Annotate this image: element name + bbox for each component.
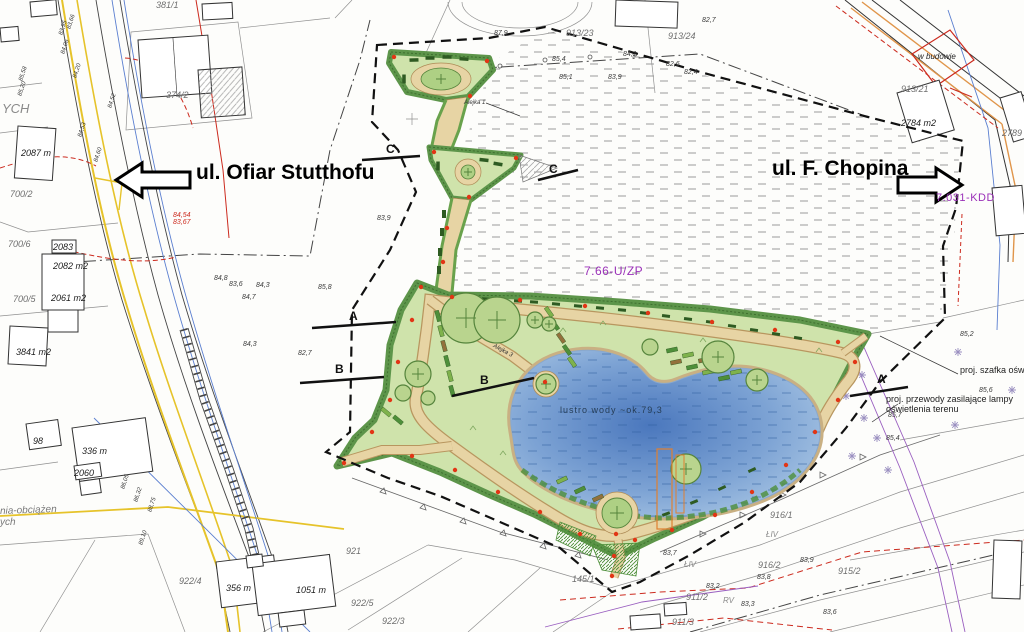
parcel-label: 913/23 bbox=[566, 29, 594, 38]
land-class-label: ŁIV bbox=[684, 561, 696, 569]
elevation-label: 83,6 bbox=[229, 281, 243, 288]
elevation-label: 83,9 bbox=[800, 557, 814, 564]
elevation-label: 82,6 bbox=[666, 61, 680, 68]
elevation-label: 85,7 bbox=[888, 412, 902, 419]
parcel-label: 911/2 bbox=[686, 593, 708, 602]
building-label: 2061 m2 bbox=[51, 294, 86, 303]
building-label: 1051 m bbox=[296, 586, 326, 595]
elevation-label: 82,4 bbox=[684, 69, 698, 76]
elevation-label: 83,9 bbox=[377, 215, 391, 222]
section-marker-a2: A bbox=[877, 373, 886, 385]
annotation-cables-1: proj. przewody zasilające lampy bbox=[886, 395, 1013, 404]
elevation-label: 85,1 bbox=[559, 74, 573, 81]
elevation-label: 82,7 bbox=[702, 17, 716, 24]
elevation-label: 83,9 bbox=[608, 74, 622, 81]
building-label: 356 m bbox=[226, 584, 251, 593]
elevation-label: 83,2 bbox=[706, 583, 720, 590]
parcel-label: 921 bbox=[346, 547, 361, 556]
elevation-label: 83,8 bbox=[757, 574, 771, 581]
elevation-label: 84,7 bbox=[242, 294, 256, 301]
parcel-label: 381/1 bbox=[156, 1, 179, 10]
section-marker-b: B bbox=[335, 363, 344, 375]
elevation-label: 84,3 bbox=[256, 282, 270, 289]
parcel-label: 915/2 bbox=[838, 567, 861, 576]
section-marker-b2: B bbox=[480, 374, 489, 386]
elevation-label: 84,1 bbox=[623, 51, 637, 58]
building-label: 2082 m2 bbox=[53, 262, 88, 271]
arrow-left-icon bbox=[116, 163, 190, 197]
parcel-label: 700/5 bbox=[13, 295, 36, 304]
parcel-label: 922/4 bbox=[179, 577, 202, 586]
building-label: 2060 bbox=[74, 469, 94, 478]
elevation-label: 85,2 bbox=[960, 331, 974, 338]
red-benchmark-label: 84,54 bbox=[173, 212, 191, 219]
building-label: 98 bbox=[33, 437, 43, 446]
land-class-label: RV bbox=[723, 597, 734, 605]
section-marker-c2: C bbox=[549, 163, 558, 175]
street-label-right: ul. F. Chopina bbox=[772, 158, 909, 179]
building-label: 2083 bbox=[53, 243, 73, 252]
parcel-label: 916/1 bbox=[770, 511, 793, 520]
parcel-label: 911/3 bbox=[672, 618, 694, 627]
elevation-label: 84,3 bbox=[243, 341, 257, 348]
parcel-label: 913/21 bbox=[901, 85, 929, 94]
edge-street-name-fragment: YCH bbox=[2, 102, 29, 115]
edge-note-fragment-1: nia-obciążen bbox=[0, 505, 57, 517]
edge-note-fragment-2: ych bbox=[0, 518, 16, 528]
site-plan-drawing bbox=[0, 0, 1024, 632]
land-class-label: ŁIV bbox=[766, 531, 778, 539]
red-benchmark-label: 83,67 bbox=[173, 219, 191, 226]
parcel-label: 700/2 bbox=[10, 190, 33, 199]
parcel-label: 700/6 bbox=[8, 240, 31, 249]
annotation-cabinet: proj. szafka oświetl bbox=[960, 366, 1024, 375]
elevation-label: 87,9 bbox=[494, 30, 508, 37]
pond-label: lustro wody ~ok.79,3 bbox=[560, 406, 663, 415]
elevation-label: 82,7 bbox=[298, 350, 312, 357]
parcel-label: 374/2 bbox=[166, 91, 189, 100]
elevation-label: 85,4 bbox=[552, 56, 566, 63]
site-plan-page: ul. Ofiar Stutthofu ul. F. Chopina 7.66-… bbox=[0, 0, 1024, 632]
elevation-label: 84,8 bbox=[214, 275, 228, 282]
path-label-alejka-1: Alejka 1 bbox=[464, 100, 485, 106]
parcel-label: 2789 bbox=[1002, 129, 1022, 138]
building-label: 2087 m bbox=[21, 149, 51, 158]
parcel-label: 922/5 bbox=[351, 599, 374, 608]
parcel-label: 145/1 bbox=[572, 575, 595, 584]
zone-label-park: 7.66-U/ZP bbox=[584, 265, 643, 277]
section-marker-c: C bbox=[386, 143, 395, 155]
building-label: 3841 m2 bbox=[16, 348, 51, 357]
street-label-left: ul. Ofiar Stutthofu bbox=[196, 162, 374, 183]
elevation-label: 83,6 bbox=[823, 609, 837, 616]
elevation-label: 85,6 bbox=[979, 387, 993, 394]
elevation-label: 85,4 bbox=[886, 435, 900, 442]
building-label: 336 m bbox=[82, 447, 107, 456]
building-label: 2784 m2 bbox=[901, 119, 936, 128]
parcel-label: 913/24 bbox=[668, 32, 696, 41]
elevation-label: 83,7 bbox=[663, 550, 677, 557]
zone-label-road: 7.031-KDD bbox=[936, 193, 995, 204]
parcel-label: 922/3 bbox=[382, 617, 405, 626]
annotation-under-construction: w budowie bbox=[918, 53, 956, 61]
parcel-label: 916/2 bbox=[758, 561, 781, 570]
elevation-label: 85,8 bbox=[318, 284, 332, 291]
elevation-label: 83,3 bbox=[741, 601, 755, 608]
section-marker-a: A bbox=[349, 310, 358, 322]
